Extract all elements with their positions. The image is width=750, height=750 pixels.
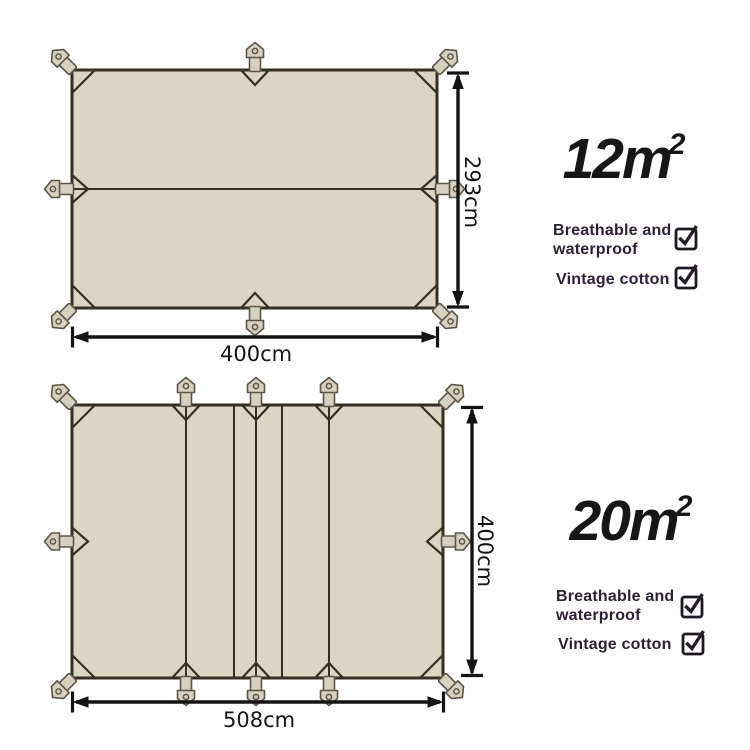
tarp-20-panel bbox=[72, 405, 443, 678]
tarp-spec-image: 293cm 400cm 12m2 Breathable and waterpro… bbox=[0, 0, 750, 750]
tie-buckle-icon bbox=[45, 181, 74, 198]
tie-buckle-icon bbox=[321, 378, 338, 407]
tarp-20-shape bbox=[45, 378, 471, 706]
tarp-diagrams-art bbox=[0, 0, 750, 750]
tarp-12-shape bbox=[45, 43, 465, 336]
tie-buckle-icon bbox=[248, 378, 265, 407]
tie-buckle-icon bbox=[436, 181, 465, 198]
tie-buckle-icon bbox=[178, 378, 195, 407]
tie-buckle-icon bbox=[247, 43, 264, 72]
tie-buckle-icon bbox=[247, 307, 264, 336]
tie-buckle-icon bbox=[45, 533, 74, 550]
tie-buckle-icon bbox=[442, 533, 471, 550]
